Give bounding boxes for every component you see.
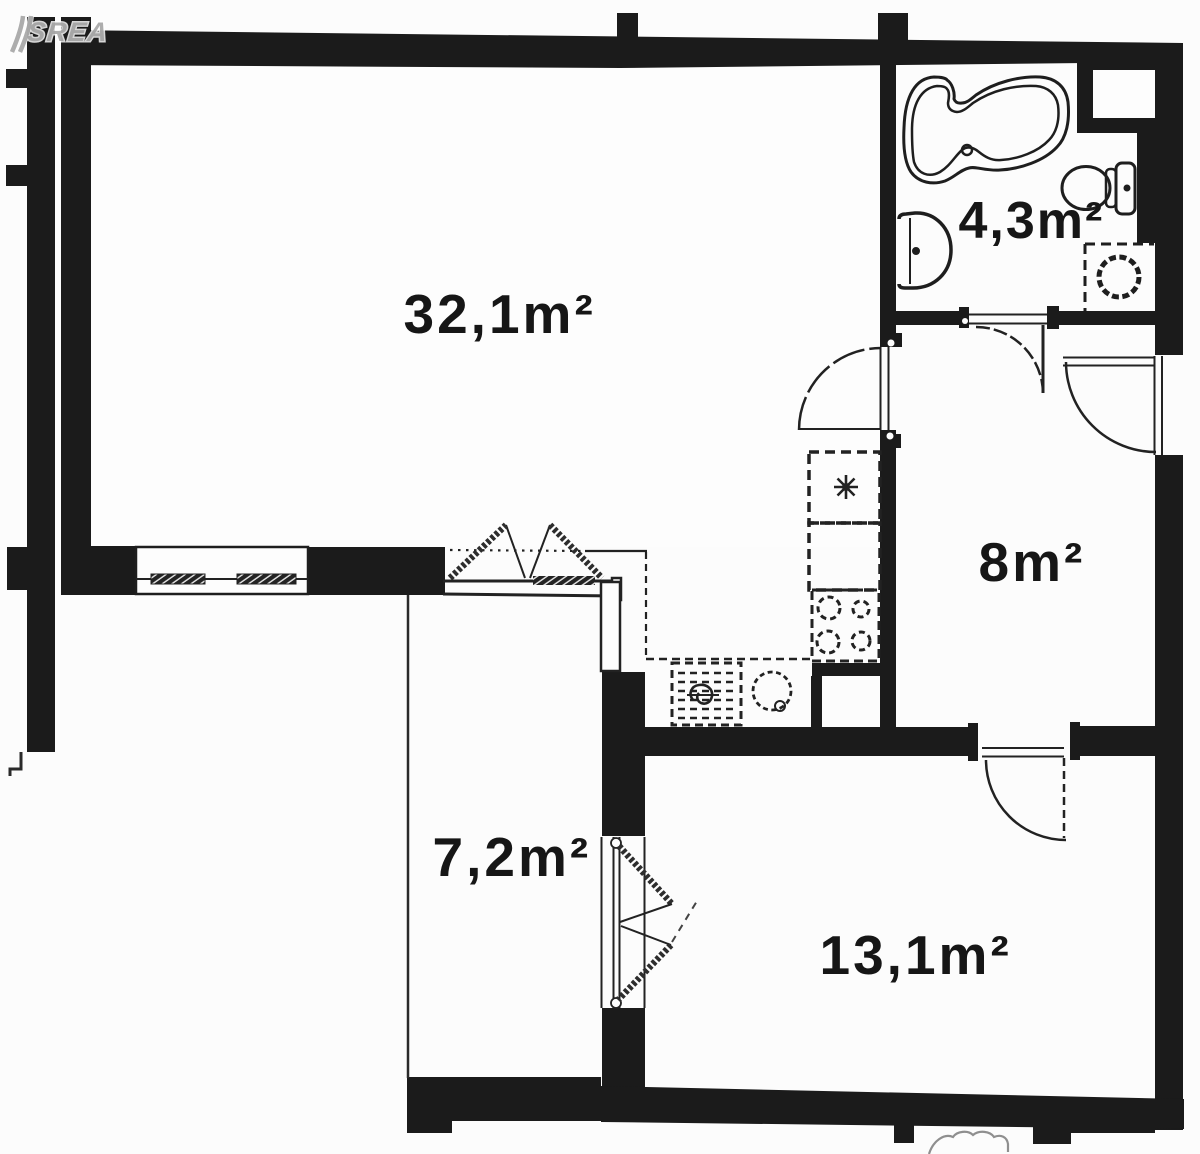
svg-text:32,1m²: 32,1m² [404,283,596,345]
svg-text:7,2m²: 7,2m² [433,826,592,888]
svg-text:13,1m²: 13,1m² [820,924,1012,986]
svg-text:4,3m²: 4,3m² [959,192,1105,250]
svg-text:SREA: SREA [26,16,110,47]
svg-text:8m²: 8m² [979,531,1086,593]
